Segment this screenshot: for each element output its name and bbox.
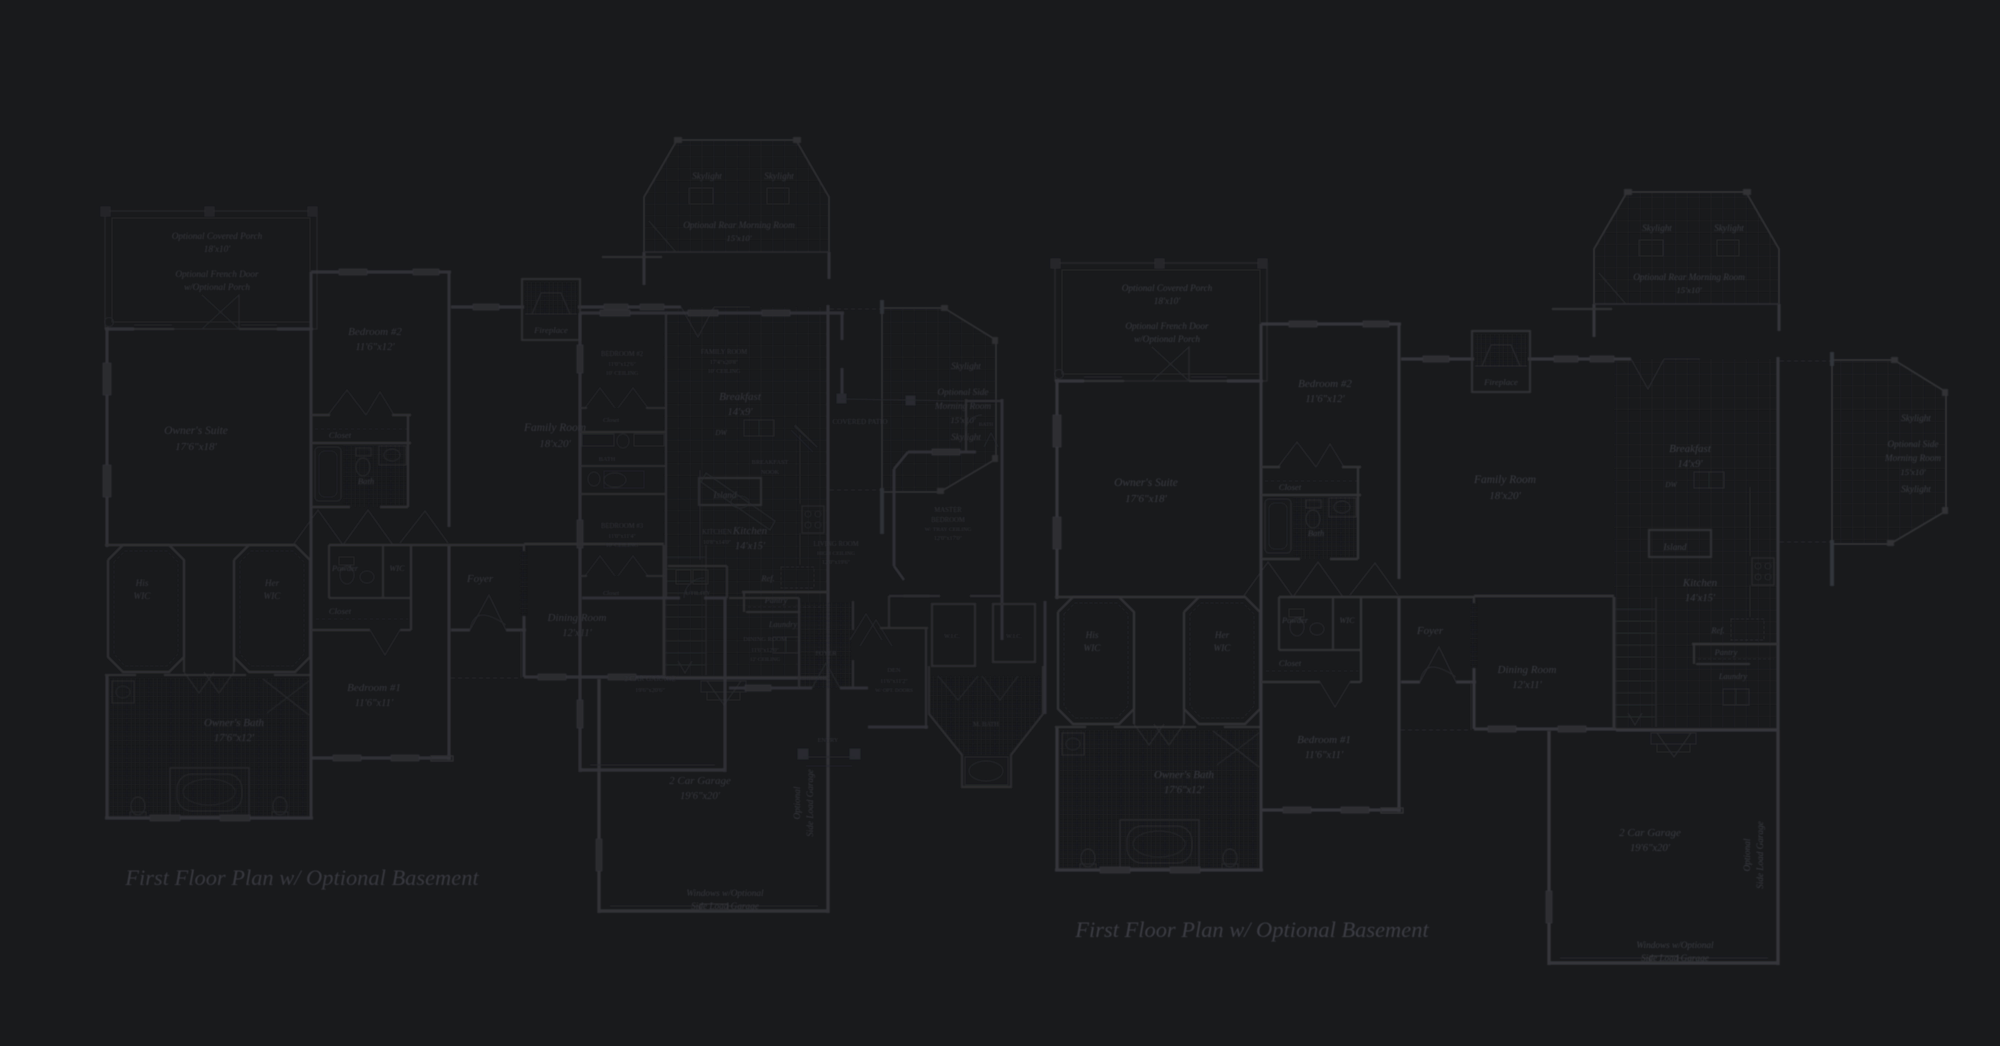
svg-text:Closet: Closet (329, 430, 352, 440)
svg-text:Pantry: Pantry (1714, 648, 1738, 657)
svg-text:Side Load Garage: Side Load Garage (691, 901, 759, 911)
svg-text:11'6"x12': 11'6"x12' (1305, 394, 1345, 405)
svg-text:Breakfast: Breakfast (719, 391, 762, 403)
svg-text:NOOK: NOOK (761, 469, 780, 476)
svg-text:Side Load Garage: Side Load Garage (1755, 821, 1765, 889)
svg-text:BEDROOM #2: BEDROOM #2 (601, 351, 644, 358)
svg-text:Powder: Powder (331, 564, 359, 573)
svg-text:10' CEILING: 10' CEILING (606, 371, 639, 377)
svg-text:Dining Room: Dining Room (547, 612, 607, 624)
svg-text:WIC: WIC (389, 564, 405, 573)
svg-text:Optional French Door: Optional French Door (1125, 321, 1209, 331)
svg-text:Kitchen: Kitchen (732, 525, 768, 537)
svg-text:DW: DW (714, 428, 727, 437)
svg-text:w/Optional Porch: w/Optional Porch (1134, 334, 1200, 344)
svg-text:11'6"x12'0": 11'6"x12'0" (751, 648, 779, 654)
svg-text:15'x10': 15'x10' (1900, 467, 1925, 477)
svg-text:Optional: Optional (792, 786, 802, 819)
svg-text:12'x11': 12'x11' (1512, 680, 1542, 691)
svg-text:Optional Covered Porch: Optional Covered Porch (1122, 283, 1213, 293)
svg-text:Closet: Closet (1279, 658, 1302, 668)
svg-text:Ref.: Ref. (1710, 626, 1724, 635)
svg-text:Kitchen: Kitchen (1682, 577, 1718, 589)
svg-text:Optional Covered Porch: Optional Covered Porch (172, 231, 263, 241)
svg-text:Family Room: Family Room (1473, 474, 1536, 486)
svg-text:17'6"x18': 17'6"x18' (1125, 493, 1167, 505)
svg-text:2 CAR GARAGE: 2 CAR GARAGE (624, 675, 676, 683)
svg-text:Morning Room: Morning Room (934, 401, 992, 411)
svg-text:10' CEILING: 10' CEILING (708, 369, 741, 375)
svg-text:BEDROOM: BEDROOM (931, 517, 965, 524)
svg-text:18'x20': 18'x20' (1489, 490, 1521, 502)
svg-text:Bath: Bath (358, 476, 375, 486)
svg-text:Breakfast: Breakfast (1669, 443, 1712, 455)
svg-text:19'6"x20': 19'6"x20' (1630, 843, 1671, 854)
svg-text:11'0"x11'4": 11'0"x11'4" (608, 534, 636, 540)
svg-text:W.I.C.: W.I.C. (944, 634, 960, 640)
svg-text:LIVING ROOM: LIVING ROOM (813, 541, 858, 548)
svg-text:COVERED PATIO: COVERED PATIO (832, 418, 887, 426)
svg-text:Her: Her (264, 578, 280, 588)
svg-text:Foyer: Foyer (1416, 625, 1444, 637)
svg-text:Bedroom #1: Bedroom #1 (1297, 734, 1351, 746)
svg-text:Bedroom #2: Bedroom #2 (348, 326, 402, 338)
svg-text:Fireplace: Fireplace (533, 325, 568, 335)
svg-text:ENTRY: ENTRY (818, 737, 839, 744)
svg-text:15'x10': 15'x10' (950, 415, 975, 425)
svg-text:12' CEILING: 12' CEILING (750, 657, 781, 663)
svg-text:Closet: Closet (603, 417, 620, 424)
svg-text:Bath: Bath (1308, 528, 1325, 538)
svg-text:Optional: Optional (1742, 838, 1752, 871)
svg-text:WIC: WIC (264, 591, 282, 601)
svg-text:Skylight: Skylight (764, 171, 794, 181)
svg-text:Family Room: Family Room (523, 422, 586, 434)
svg-text:Closet: Closet (1279, 482, 1302, 492)
svg-text:Side Load Garage: Side Load Garage (1641, 953, 1709, 963)
svg-text:10'8"x14'0": 10'8"x14'0" (703, 540, 732, 546)
svg-text:15'x10': 15'x10' (1676, 285, 1701, 295)
svg-text:Closet: Closet (603, 590, 620, 597)
svg-text:DW: DW (1664, 480, 1677, 489)
svg-text:15'x10': 15'x10' (726, 233, 751, 243)
svg-text:11'6"x11'2": 11'6"x11'2" (880, 679, 908, 685)
svg-text:Windows w/Optional: Windows w/Optional (686, 888, 764, 898)
svg-text:14'x15': 14'x15' (1685, 593, 1716, 604)
svg-text:Dining Room: Dining Room (1497, 664, 1557, 676)
svg-text:WIC: WIC (134, 591, 152, 601)
svg-text:M. BATH: M. BATH (973, 721, 999, 728)
svg-text:Ref.: Ref. (760, 574, 774, 583)
svg-text:Skylight: Skylight (951, 361, 981, 371)
svg-text:11'0"x12'6": 11'0"x12'6" (608, 362, 636, 368)
svg-text:11'6"x11': 11'6"x11' (1305, 750, 1344, 761)
svg-text:WIC: WIC (1214, 643, 1232, 653)
svg-text:FOYER: FOYER (815, 650, 837, 657)
svg-text:Skylight: Skylight (1714, 223, 1744, 233)
svg-text:11'6"x11': 11'6"x11' (355, 698, 394, 709)
svg-text:17'6"x12': 17'6"x12' (214, 733, 255, 744)
svg-text:First Floor Plan w/ Optional: First Floor Plan w/ Optional Basement (124, 865, 479, 890)
svg-text:Optional Rear Morning Room: Optional Rear Morning Room (683, 220, 795, 230)
svg-text:WIC: WIC (1339, 616, 1355, 625)
svg-text:W/ TRAY CEILING: W/ TRAY CEILING (925, 527, 972, 533)
svg-text:18'x10': 18'x10' (204, 244, 232, 254)
svg-text:DEN: DEN (887, 667, 901, 674)
svg-text:KITCHEN: KITCHEN (702, 529, 732, 536)
svg-text:12'0"x19'6": 12'0"x19'6" (822, 560, 851, 566)
svg-text:Optional Side: Optional Side (1887, 439, 1938, 449)
svg-text:BATH: BATH (599, 456, 616, 463)
svg-text:Windows w/Optional: Windows w/Optional (1636, 940, 1714, 950)
svg-text:Owner's Bath: Owner's Bath (1154, 769, 1215, 781)
svg-text:Laundry: Laundry (768, 620, 798, 629)
svg-text:Laundry: Laundry (1718, 672, 1748, 681)
svg-text:Fireplace: Fireplace (1483, 377, 1518, 387)
svg-text:Skylight: Skylight (1901, 413, 1931, 423)
svg-text:His: His (1085, 630, 1099, 640)
svg-text:12'0"x17'0": 12'0"x17'0" (934, 536, 963, 542)
svg-text:Side Load Garage: Side Load Garage (805, 769, 815, 837)
svg-text:His: His (135, 578, 149, 588)
svg-text:14'x9': 14'x9' (1677, 459, 1703, 470)
svg-text:19'6"x20': 19'6"x20' (680, 791, 721, 802)
svg-text:BEDROOM #3: BEDROOM #3 (601, 523, 644, 530)
svg-text:18'x20': 18'x20' (539, 438, 571, 450)
svg-text:14'x9': 14'x9' (727, 407, 753, 418)
svg-text:Bedroom #1: Bedroom #1 (347, 682, 401, 694)
svg-text:Island: Island (1662, 542, 1686, 552)
svg-text:W.I.C.: W.I.C. (1006, 634, 1022, 640)
svg-text:MASTER: MASTER (934, 507, 962, 514)
svg-text:17'6"x12': 17'6"x12' (1164, 785, 1205, 796)
svg-text:Owner's Bath: Owner's Bath (204, 717, 265, 729)
svg-text:12'x11': 12'x11' (562, 628, 592, 639)
svg-text:w/Optional Porch: w/Optional Porch (184, 282, 250, 292)
svg-text:BREAKFAST: BREAKFAST (752, 459, 789, 466)
svg-text:Owner's Suite: Owner's Suite (164, 425, 228, 437)
svg-text:Owner's Suite: Owner's Suite (1114, 477, 1178, 489)
svg-text:FAMILY ROOM: FAMILY ROOM (701, 349, 748, 356)
svg-text:WIC: WIC (1084, 643, 1102, 653)
svg-text:Closet: Closet (329, 606, 352, 616)
svg-text:Optional French Door: Optional French Door (175, 269, 259, 279)
svg-text:Optional Side: Optional Side (937, 387, 988, 397)
svg-text:Skylight: Skylight (1642, 223, 1672, 233)
svg-text:14'x15': 14'x15' (735, 541, 766, 552)
svg-text:Skylight: Skylight (1901, 484, 1931, 494)
svg-text:11'6"x12': 11'6"x12' (355, 342, 395, 353)
svg-text:Her: Her (1214, 630, 1230, 640)
svg-text:BATH: BATH (979, 422, 994, 428)
svg-text:Bedroom #2: Bedroom #2 (1298, 378, 1352, 390)
svg-text:2 Car Garage: 2 Car Garage (1619, 827, 1681, 839)
svg-text:Skylight: Skylight (692, 171, 722, 181)
svg-text:Foyer: Foyer (466, 573, 494, 585)
svg-text:W/ OPT. DOORS: W/ OPT. DOORS (875, 688, 913, 694)
svg-text:10' CEILING: 10' CEILING (606, 543, 639, 549)
svg-text:First Floor Plan w/ Optional: First Floor Plan w/ Optional Basement (1074, 917, 1429, 942)
svg-text:Powder: Powder (1281, 616, 1309, 625)
svg-text:17'6"x18': 17'6"x18' (175, 441, 217, 453)
svg-text:Optional Rear Morning Room: Optional Rear Morning Room (1633, 272, 1745, 282)
svg-text:18'x10': 18'x10' (1154, 296, 1182, 306)
svg-text:2 Car Garage: 2 Car Garage (669, 775, 731, 787)
svg-text:17'4"x20'8": 17'4"x20'8" (710, 360, 739, 366)
svg-text:Morning Room: Morning Room (1884, 453, 1942, 463)
svg-text:HIGH CEILING: HIGH CEILING (817, 551, 855, 557)
svg-text:DINING ROOM: DINING ROOM (743, 636, 787, 643)
svg-text:19'6"x20'6": 19'6"x20'6" (635, 687, 665, 694)
svg-text:UTILITY: UTILITY (685, 590, 711, 597)
